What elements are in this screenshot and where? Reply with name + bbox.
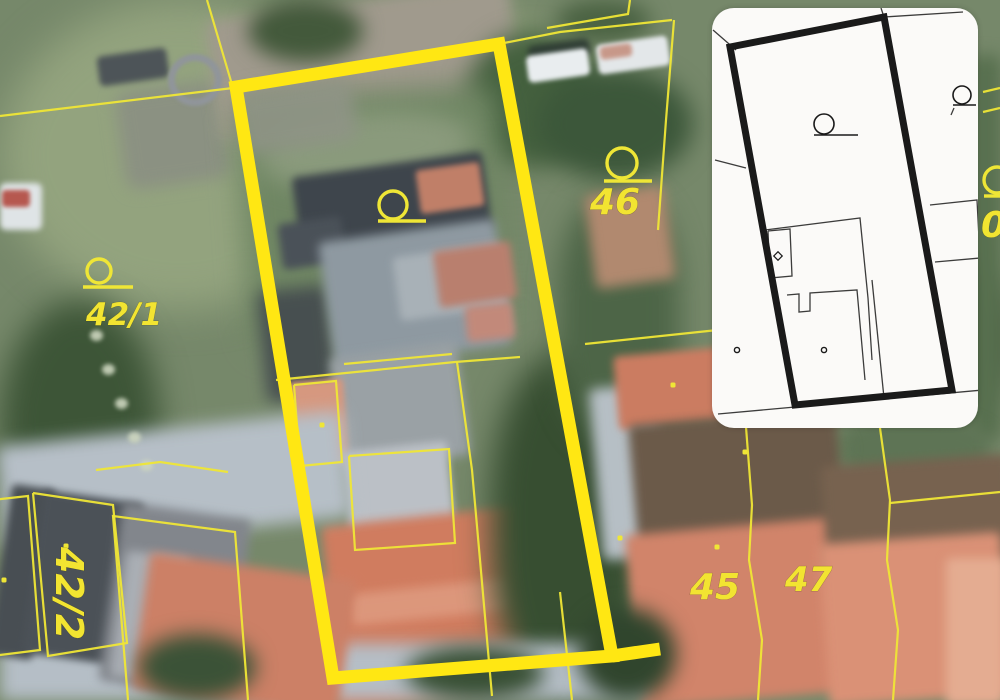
parcel-boundary-line	[457, 362, 492, 696]
parcel-boundary-line	[0, 496, 40, 656]
parcel-label-0-partial: 0	[981, 205, 1000, 246]
parcel-boundary-line	[983, 108, 1000, 112]
parcel-boundary-line	[349, 449, 455, 550]
parcel-boundary-line	[547, 0, 630, 28]
parcel-boundary-line	[983, 88, 1000, 92]
parcel-boundary-line	[499, 20, 672, 44]
parcel-label-42-1: 42/1	[85, 297, 162, 333]
boundary-dot	[715, 545, 720, 550]
parcel-boundary-line	[658, 20, 674, 230]
boundary-dot	[743, 450, 748, 455]
boundary-dot	[2, 578, 7, 583]
highlighted-parcel-outline	[236, 44, 612, 678]
parcel-boundary-line	[880, 428, 898, 700]
inset-building-line	[951, 108, 954, 115]
inset-small-circle	[734, 347, 739, 352]
survey-point-icon	[87, 259, 111, 283]
inset-survey-point-icon	[953, 86, 971, 104]
inset-building-line	[884, 12, 963, 17]
inset-diamond-point	[774, 252, 782, 260]
parcel-label-42-2: 42/2	[47, 546, 91, 640]
parcel-boundary-line	[207, 0, 233, 88]
parcel-boundary-line	[0, 88, 233, 116]
highlight-outline-stub	[612, 649, 660, 656]
parcel-boundary-line	[276, 357, 520, 380]
boundary-dot	[618, 536, 623, 541]
survey-point-icon	[984, 167, 1000, 193]
parcel-label-45: 45	[689, 567, 740, 608]
aerial-map[interactable]: 42/142/2414546470	[0, 0, 1000, 700]
parcel-boundary-line	[746, 427, 762, 700]
inset-plan	[712, 8, 978, 428]
parcel-boundary-line	[113, 516, 248, 700]
parcel-boundary-line	[890, 492, 1000, 503]
survey-point-icon	[607, 148, 637, 178]
inset-survey-point-icon	[814, 114, 834, 134]
inset-small-circle	[821, 347, 826, 352]
parcel-boundary-line	[96, 462, 228, 472]
survey-point-icon	[379, 191, 407, 219]
parcel-label-46: 46	[589, 182, 640, 223]
boundary-dot	[320, 423, 325, 428]
inset-parcel-outline	[730, 17, 952, 405]
boundary-dot	[671, 383, 676, 388]
inset-building-line	[930, 200, 978, 262]
parcel-label-47: 47	[784, 560, 833, 600]
parcel-boundary-line	[560, 592, 572, 700]
inset-building-line	[787, 290, 865, 380]
inset-building-line	[715, 160, 746, 168]
inset-plan-drawing	[712, 8, 978, 428]
inset-building-line	[872, 280, 884, 398]
parcel-boundary-line	[344, 354, 452, 364]
